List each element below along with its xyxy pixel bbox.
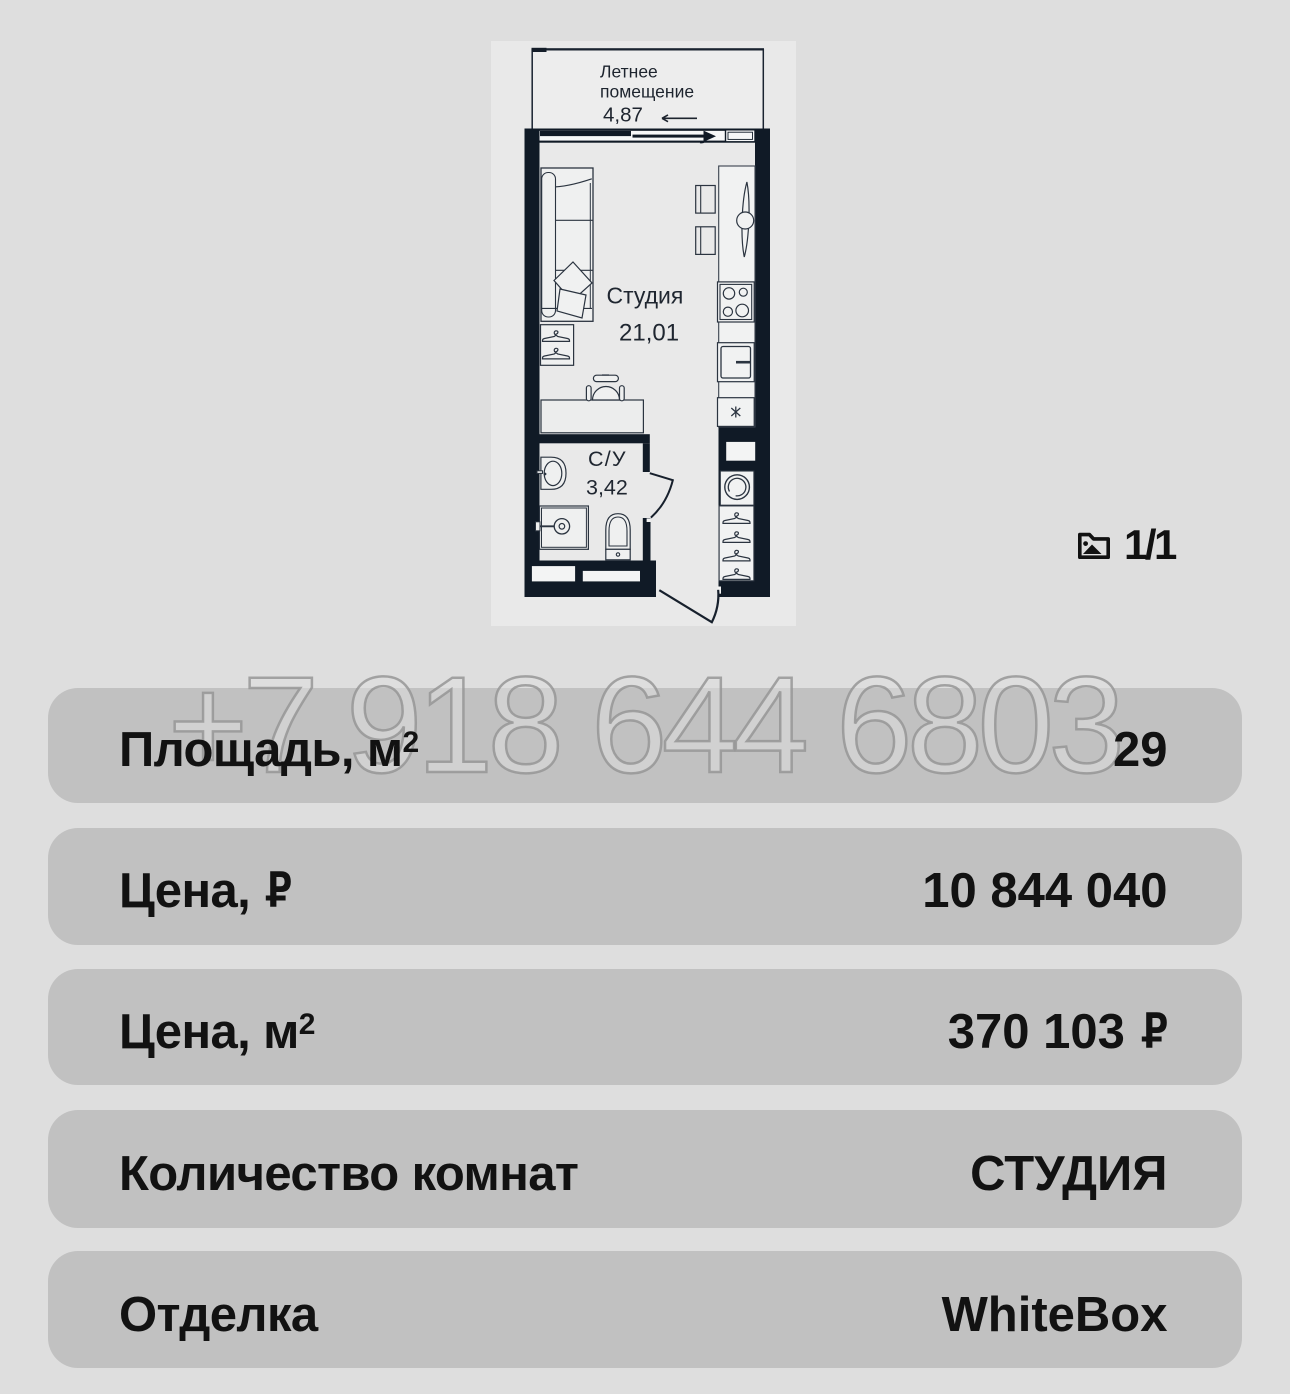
svg-text:21,01: 21,01 bbox=[619, 320, 679, 347]
svg-text:Летнее: Летнее bbox=[600, 62, 658, 82]
svg-text:Студия: Студия bbox=[607, 283, 684, 309]
svg-text:4,87: 4,87 bbox=[603, 104, 643, 127]
svg-text:3,42: 3,42 bbox=[586, 476, 628, 500]
svg-text:помещение: помещение bbox=[600, 82, 694, 102]
svg-text:С/У: С/У bbox=[588, 447, 627, 471]
